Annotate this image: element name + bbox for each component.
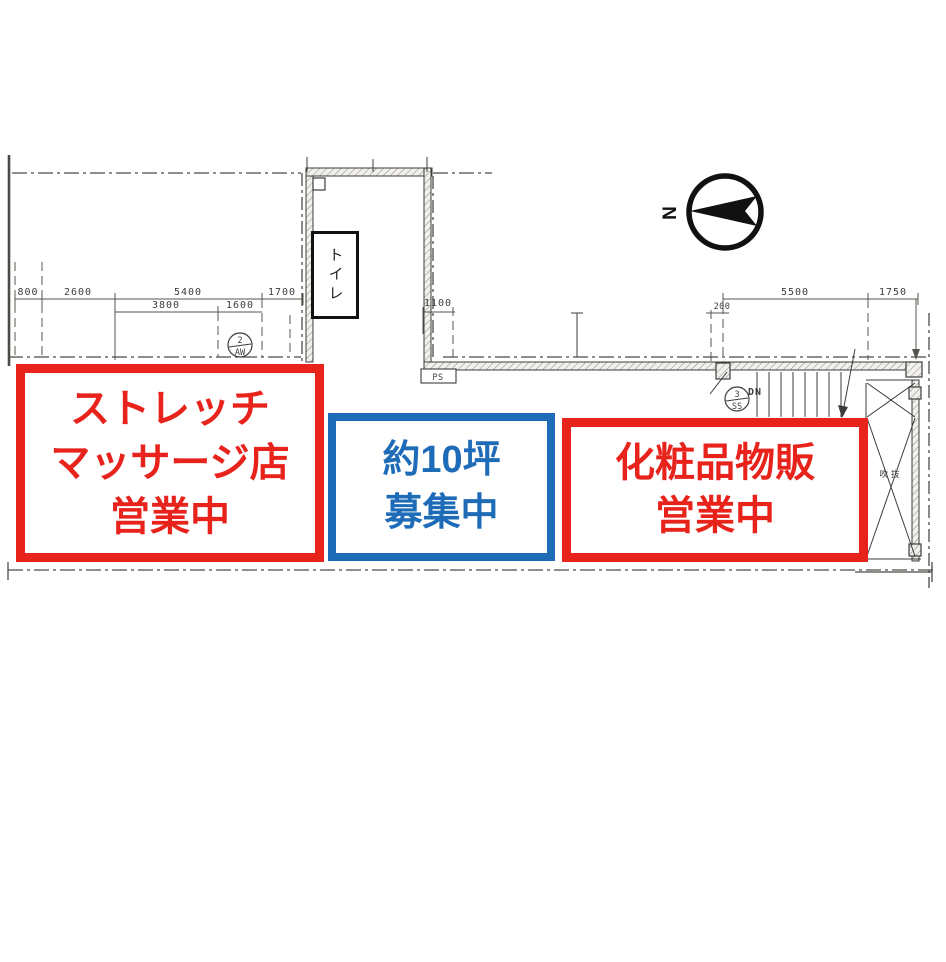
unit-label-line: 募集中 (384, 487, 498, 540)
unit-label-stretch-massage: ストレッチ マッサージ店 営業中 (16, 364, 324, 562)
unit-label-line: 営業中 (655, 490, 775, 543)
left-dimension-lines (15, 262, 303, 360)
dim-3800: 3800 (152, 300, 180, 311)
toilet-label-box: トイレ (311, 231, 359, 319)
void-label: 吹抜 (879, 469, 902, 480)
unit-label-line: 約10坪 (382, 434, 500, 487)
right-dimension-lines (706, 293, 920, 364)
tag-2aw-number: 2 (237, 336, 242, 346)
dim-1750: 1750 (879, 287, 907, 298)
tag-2aw-code: AW (235, 348, 246, 358)
stairs (757, 349, 855, 418)
unit-label-line: マッサージ店 (50, 436, 289, 490)
dim-5500: 5500 (781, 287, 809, 298)
toilet-label: トイレ (325, 247, 346, 304)
unit-label-line: 化粧品物販 (615, 437, 815, 490)
dim-1600: 1600 (226, 300, 254, 311)
dim-5400: 5400 (174, 287, 202, 298)
north-arrow-icon (690, 196, 757, 226)
ps-shaft: PS (421, 369, 456, 383)
unit-label-line: 営業中 (110, 490, 230, 544)
compass-north-label: N (660, 206, 681, 220)
corridor-wall (424, 313, 922, 394)
dim-1700: 1700 (268, 287, 296, 298)
unit-label-cosmetics: 化粧品物販 営業中 (562, 418, 868, 562)
ps-label: PS (432, 373, 443, 383)
unit-label-line: ストレッチ (70, 382, 270, 436)
floor-plan-page: PS 800 2600 5400 1700 3800 1600 (0, 0, 946, 962)
dim-800: 800 (17, 287, 38, 298)
north-compass: N (660, 176, 761, 248)
dim-1100: 1100 (424, 298, 452, 309)
tag-3ss-code: SS (732, 402, 742, 412)
dim-200: 200 (714, 302, 731, 312)
dim-2600: 2600 (64, 287, 92, 298)
unit-label-vacancy: 約10坪 募集中 (328, 413, 555, 561)
tag-2aw: 2 AW (228, 333, 252, 358)
stairs-down-label: DN (748, 387, 762, 398)
tag-3ss-number: 3 (734, 390, 739, 400)
tag-3ss: 3 SS (725, 387, 749, 412)
